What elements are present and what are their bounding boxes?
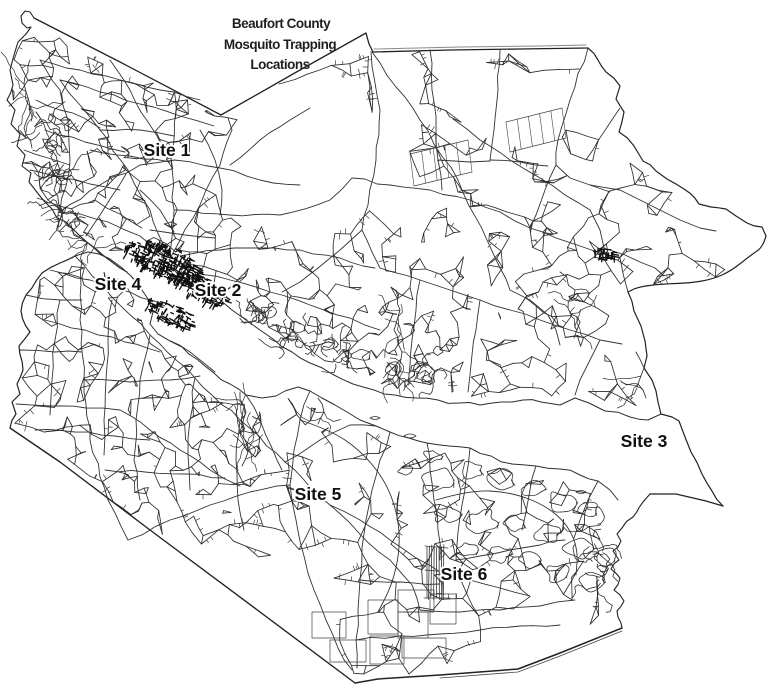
- svg-text:Site 6: Site 6: [441, 564, 488, 584]
- svg-text:Site 1: Site 1: [144, 140, 191, 160]
- svg-text:Site 5: Site 5: [295, 484, 342, 504]
- svg-text:Mosquito Trapping: Mosquito Trapping: [224, 37, 336, 52]
- svg-text:Site 3: Site 3: [621, 431, 668, 451]
- svg-text:Site 4: Site 4: [95, 274, 142, 294]
- svg-text:Beaufort County: Beaufort County: [232, 16, 331, 31]
- svg-text:Site 2: Site 2: [195, 280, 242, 300]
- svg-text:Locations: Locations: [250, 57, 309, 72]
